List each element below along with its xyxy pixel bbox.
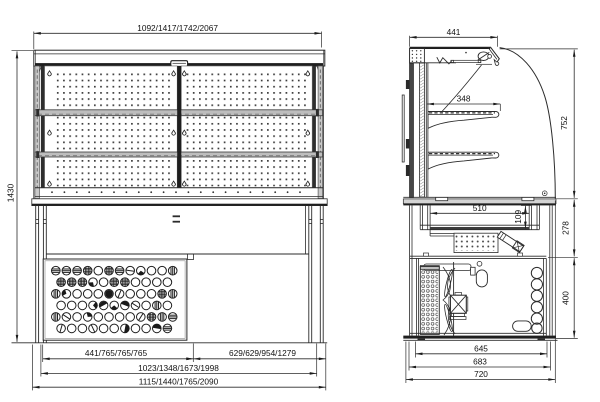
svg-text:441: 441 — [447, 27, 461, 37]
svg-text:683: 683 — [473, 357, 487, 367]
svg-text:645: 645 — [474, 343, 488, 353]
svg-text:720: 720 — [474, 369, 488, 379]
svg-text:629/629/954/1279: 629/629/954/1279 — [229, 348, 296, 358]
svg-text:510: 510 — [473, 203, 487, 213]
svg-text:441/765/765/765: 441/765/765/765 — [85, 348, 148, 358]
svg-text:400: 400 — [561, 291, 571, 305]
svg-text:1115/1440/1765/2090: 1115/1440/1765/2090 — [139, 377, 219, 387]
svg-text:278: 278 — [561, 221, 571, 235]
svg-text:348: 348 — [457, 93, 471, 103]
svg-text:1430: 1430 — [5, 183, 15, 202]
svg-text:752: 752 — [559, 116, 569, 130]
svg-text:1023/1348/1673/1998: 1023/1348/1673/1998 — [138, 363, 219, 373]
svg-text:109: 109 — [513, 209, 523, 223]
svg-text:1092/1417/1742/2067: 1092/1417/1742/2067 — [137, 23, 218, 33]
